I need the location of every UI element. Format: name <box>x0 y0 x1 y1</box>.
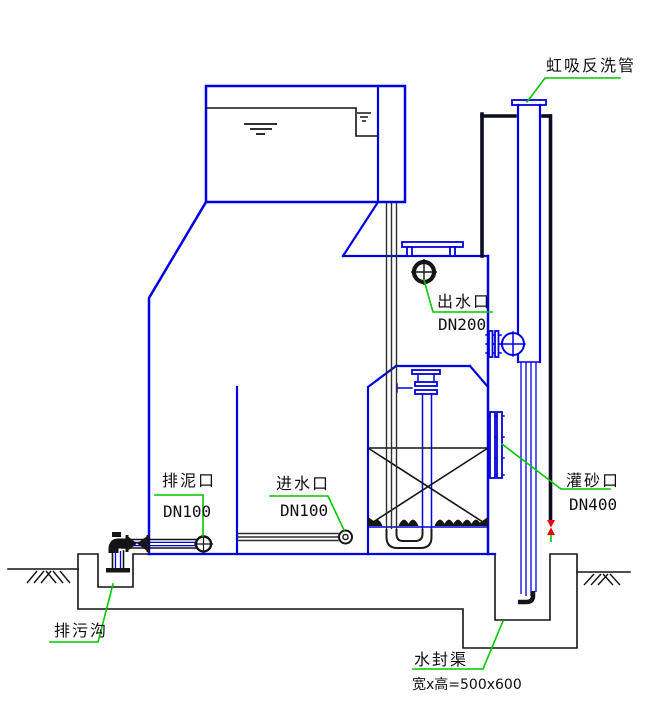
central-riser-pipe <box>423 394 432 531</box>
ground-hatch-icon <box>27 571 70 583</box>
sand-port-flange <box>488 412 504 478</box>
label-sewage-ditch: 排污沟 <box>54 621 108 640</box>
siphon-column <box>482 100 555 602</box>
u-bend-pipe <box>387 529 432 548</box>
inlet-pipe-assembly <box>238 531 352 544</box>
leader-siphon <box>527 78 620 102</box>
top-pipe-flange-stack <box>397 370 440 394</box>
label-inlet-port-spec: DN100 <box>280 501 328 520</box>
filter-tank-diagram: 虹吸反洗管 出水口 DN200 排泥口 DN100 进水口 DN100 灌砂口 … <box>0 0 662 713</box>
label-sand-port-spec: DN400 <box>569 495 617 514</box>
label-water-outlet: 出水口 <box>437 292 491 311</box>
leader-lines <box>50 78 620 669</box>
label-seal-channel: 水封渠 <box>414 650 468 669</box>
ball-valve-icon <box>486 331 525 357</box>
chamber-top-flange <box>402 242 463 256</box>
ground-level-right <box>577 572 630 585</box>
ground-hatch-icon <box>584 574 620 585</box>
water-surface-line <box>206 108 378 136</box>
mud-discharge-assembly <box>106 532 213 573</box>
label-inlet-port: 进水口 <box>276 474 330 493</box>
filter-right-chamfer <box>470 366 488 387</box>
outlet-chamber <box>343 242 488 554</box>
siphon-pipe <box>512 100 546 362</box>
ground-level-left <box>8 569 78 583</box>
drawing-canvas: 虹吸反洗管 出水口 DN200 排泥口 DN100 进水口 DN100 灌砂口 … <box>0 0 662 713</box>
upper-water-tank <box>206 86 405 202</box>
label-seal-channel-dim: 宽x高=500x600 <box>412 676 522 693</box>
label-water-outlet-spec: DN200 <box>438 315 486 334</box>
label-mud-port: 排泥口 <box>162 471 216 490</box>
right-sloped-wall <box>343 202 378 256</box>
inlet-port-icon <box>339 531 352 544</box>
label-sand-port: 灌砂口 <box>566 471 620 490</box>
concrete-foundation <box>78 554 577 648</box>
label-mud-port-spec: DN100 <box>163 502 211 521</box>
foundation-outline <box>78 554 577 648</box>
drain-valve-icon <box>547 520 555 542</box>
label-siphon-backwash: 虹吸反洗管 <box>546 56 636 75</box>
upper-tank-shell <box>206 86 405 202</box>
water-level-icon <box>244 124 277 134</box>
gate-valve-icon <box>126 535 150 552</box>
water-level-icon-small <box>357 113 371 121</box>
seal-drop-pipes <box>521 362 536 596</box>
mud-port-icon <box>194 535 213 553</box>
